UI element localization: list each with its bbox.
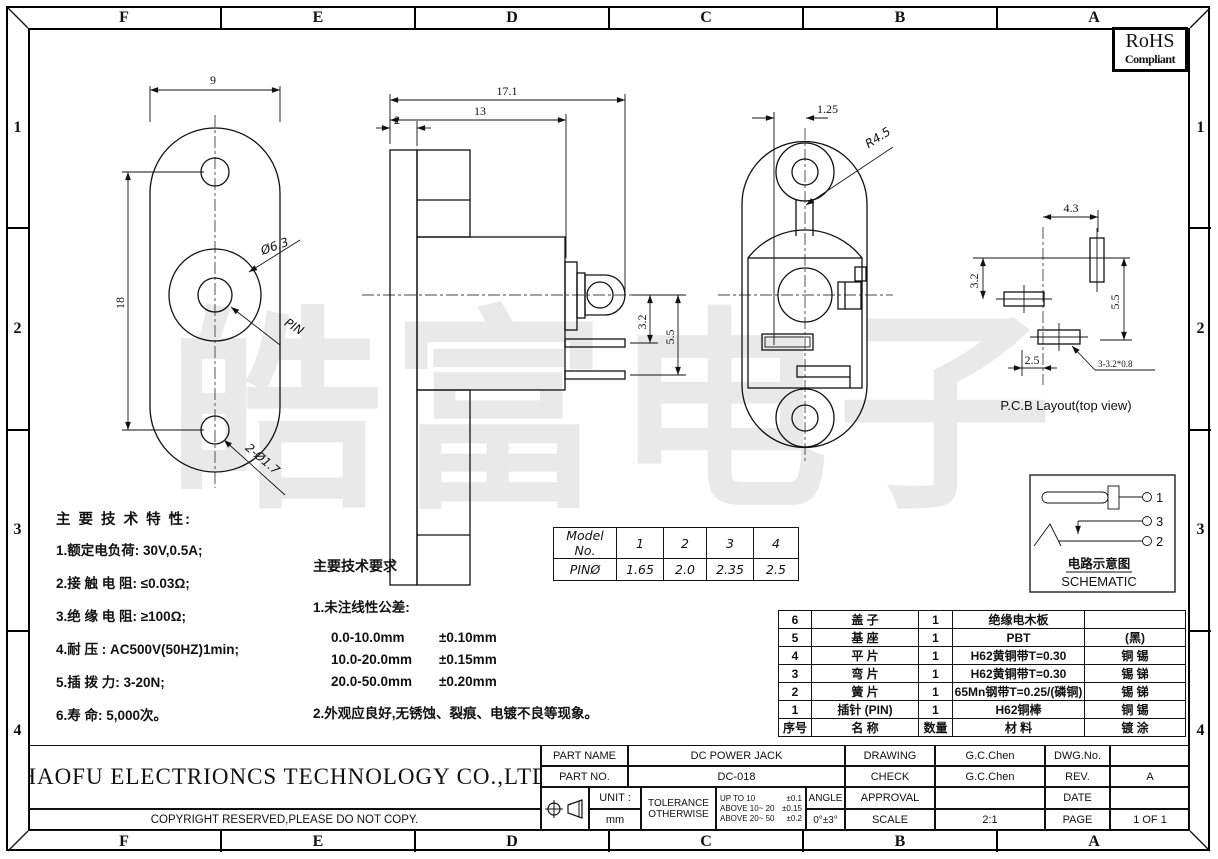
drawing-sheet: 皓富电子 F E D C B A F E D C B A 1 2 3 4 1 2… <box>0 0 1218 859</box>
drawing-label: DRAWING <box>845 745 935 766</box>
company-name: HAOFU ELECTRIONCS TECHNOLOGY CO.,LTD <box>28 745 541 809</box>
bom-row: 6 盖 子 1 绝缘电木板 <box>779 611 1186 629</box>
tolerance-row: 20.0-50.0mm ±0.20mm <box>331 674 633 689</box>
bom-qty: 1 <box>919 629 953 647</box>
bom-row: 1 插针 (PIN) 1 H62铜棒 铜 锡 <box>779 701 1186 719</box>
bom-no: 4 <box>779 647 812 665</box>
projection-symbol-icon <box>544 795 586 823</box>
bom-header-plating: 镀 涂 <box>1085 719 1186 737</box>
front-width-dim: 9 <box>210 73 216 87</box>
rear-view: 1.25 R4.5 <box>718 102 893 462</box>
side-term1-dim: 3.2 <box>635 315 649 330</box>
rear-offset-dim: 1.25 <box>817 102 838 116</box>
bom-header-material: 材 料 <box>953 719 1085 737</box>
rohs-line1: RoHS <box>1115 30 1185 52</box>
model-col: 1 <box>617 528 664 559</box>
bom-qty: 1 <box>919 665 953 683</box>
tolerance-value: ±0.20mm <box>439 674 497 689</box>
part-no-label: PART NO. <box>541 766 628 787</box>
tol-range: ABOVE 10~ 20 <box>720 804 774 814</box>
tolerance-row: 10.0-20.0mm ±0.15mm <box>331 652 633 667</box>
bom-qty: 1 <box>919 701 953 719</box>
tolerance-row: 0.0-10.0mm ±0.10mm <box>331 630 633 645</box>
tech-spec-item: 2.接 触 电 阻: ≤0.03Ω; <box>56 572 326 592</box>
front-mount-holes-label: 2-Ø1.7 <box>243 441 283 478</box>
bom-material: H62黄铜带T=0.30 <box>953 647 1085 665</box>
scale-value: 2:1 <box>935 809 1045 831</box>
page-label: PAGE <box>1045 809 1110 831</box>
rohs-line2: Compliant <box>1115 52 1185 66</box>
pin-dia-value: 2.35 <box>707 559 754 581</box>
schematic-title-en: SCHEMATIC <box>1061 574 1137 589</box>
bom-name: 盖 子 <box>812 611 919 629</box>
date-label: DATE <box>1045 787 1110 809</box>
tech-spec-item: 3.绝 缘 电 阻: ≥100Ω; <box>56 605 326 625</box>
schematic-pin2-label: 2 <box>1156 534 1163 549</box>
part-no-value: DC-018 <box>628 766 845 787</box>
rear-radius-label: R4.5 <box>863 124 894 151</box>
bom-no: 2 <box>779 683 812 701</box>
bom-header-row: 序号 名 称 数量 材 料 镀 涂 <box>779 719 1186 737</box>
tech-spec-block: 主 要 技 术 特 性: 1.额定电负荷: 30V,0.5A; 2.接 触 电 … <box>56 508 326 737</box>
front-pin-label: PIN <box>282 315 306 337</box>
tech-spec-item: 1.额定电负荷: 30V,0.5A; <box>56 539 326 559</box>
schematic-box: 1 3 2 电路示意图 SCHEMATIC <box>1030 475 1175 592</box>
bom-row: 4 平 片 1 H62黄铜带T=0.30 铜 锡 <box>779 647 1186 665</box>
pcb-dim-y2: 5.5 <box>1108 295 1122 310</box>
tolerance-values-cell: UP TO 10 ±0.1 ABOVE 10~ 20 ±0.15 ABOVE 2… <box>716 787 806 831</box>
front-barrel-dia-label: Ø6.3 <box>258 235 291 258</box>
model-col: 4 <box>754 528 799 559</box>
tolerance-mini-row: UP TO 10 ±0.1 <box>720 794 802 804</box>
bom-header-name: 名 称 <box>812 719 919 737</box>
schematic-title-cn: 电路示意图 <box>1068 556 1131 571</box>
bom-plating: (黑) <box>1085 629 1186 647</box>
pin-dia-value: 2.5 <box>754 559 799 581</box>
tech-req-item2: 2.外观应良好,无锈蚀、裂痕、电镀不良等现象。 <box>313 702 633 722</box>
pcb-caption: P.C.B Layout(top view) <box>1000 398 1131 413</box>
bom-name: 插针 (PIN) <box>812 701 919 719</box>
pcb-layout: 4.3 3.2 5.5 2.5 3-3.2*0.8 P.C.B Layout(t… <box>967 201 1155 413</box>
tolerance-range: 0.0-10.0mm <box>331 630 439 645</box>
tol-range: UP TO 10 <box>720 794 755 804</box>
bom-row: 3 弯 片 1 H62黄铜带T=0.30 锡 锑 <box>779 665 1186 683</box>
pcb-dim-y1: 3.2 <box>967 274 981 289</box>
side-total-dim: 17.1 <box>497 84 518 98</box>
model-table-pin-row: PINØ 1.65 2.0 2.35 2.5 <box>554 559 799 581</box>
front-height-dim: 18 <box>113 297 127 309</box>
schematic-pin3-label: 3 <box>1156 514 1163 529</box>
side-flange-dim: 2 <box>394 113 400 127</box>
schematic-pin1-label: 1 <box>1156 490 1163 505</box>
tolerance-range: 20.0-50.0mm <box>331 674 439 689</box>
bom-plating: 铜 锡 <box>1085 701 1186 719</box>
pcb-dim-x: 4.3 <box>1064 201 1079 215</box>
bom-qty: 1 <box>919 611 953 629</box>
tolerance-mini-row: ABOVE 20~ 50 ±0.2 <box>720 814 802 824</box>
bom-row: 2 簧 片 1 65Mn钢带T=0.25/(磷铜) 锡 锑 <box>779 683 1186 701</box>
title-block: HAOFU ELECTRIONCS TECHNOLOGY CO.,LTD COP… <box>28 745 1190 831</box>
dwg-no-value <box>1110 745 1190 766</box>
check-label: CHECK <box>845 766 935 787</box>
bom-plating: 锡 锑 <box>1085 665 1186 683</box>
tolerance-value: ±0.15mm <box>439 652 497 667</box>
bom-row: 5 基 座 1 PBT (黑) <box>779 629 1186 647</box>
scale-label: SCALE <box>845 809 935 831</box>
tolerance-label-line1: TOLERANCE <box>648 798 709 809</box>
bom-no: 6 <box>779 611 812 629</box>
bom-no: 3 <box>779 665 812 683</box>
pin-dia-value: 2.0 <box>664 559 707 581</box>
angle-value: 0°±3° <box>806 809 845 831</box>
copyright-notice: COPYRIGHT RESERVED,PLEASE DO NOT COPY. <box>28 809 541 831</box>
model-col: 3 <box>707 528 754 559</box>
check-by-value: G.C.Chen <box>935 766 1045 787</box>
bom-plating <box>1085 611 1186 629</box>
rohs-stamp: RoHS Compliant <box>1112 27 1188 72</box>
model-table-header-row: Model No. 1 2 3 4 <box>554 528 799 559</box>
date-value <box>1110 787 1190 809</box>
bom-material: PBT <box>953 629 1085 647</box>
tolerance-range: 10.0-20.0mm <box>331 652 439 667</box>
bom-qty: 1 <box>919 683 953 701</box>
bom-name: 簧 片 <box>812 683 919 701</box>
bom-header-qty: 数量 <box>919 719 953 737</box>
pin-dia-header: PINØ <box>554 559 617 581</box>
model-table: Model No. 1 2 3 4 PINØ 1.65 2.0 2.35 2.5 <box>553 527 799 581</box>
angle-label: ANGLE <box>806 787 845 809</box>
rev-value: A <box>1110 766 1190 787</box>
approval-value <box>935 787 1045 809</box>
bom-header-no: 序号 <box>779 719 812 737</box>
side-body-dim: 13 <box>474 104 486 118</box>
tech-spec-item: 5.插 拨 力: 3-20N; <box>56 671 326 691</box>
rev-label: REV. <box>1045 766 1110 787</box>
tech-spec-item: 4.耐 压 : AC500V(50HZ)1min; <box>56 638 326 658</box>
pin-dia-value: 1.65 <box>617 559 664 581</box>
tolerance-mini-row: ABOVE 10~ 20 ±0.15 <box>720 804 802 814</box>
side-view: 17.1 13 2 3.2 5.5 <box>362 84 686 585</box>
bom-material: 绝缘电木板 <box>953 611 1085 629</box>
part-name-label: PART NAME <box>541 745 628 766</box>
tol-range: ABOVE 20~ 50 <box>720 814 774 824</box>
drawing-by-value: G.C.Chen <box>935 745 1045 766</box>
model-col: 2 <box>664 528 707 559</box>
projection-symbol-cell <box>541 787 589 831</box>
bom-name: 弯 片 <box>812 665 919 683</box>
bom-material: 65Mn钢带T=0.25/(磷铜) <box>953 683 1085 701</box>
tolerance-label-cell: TOLERANCE OTHERWISE <box>641 787 716 831</box>
tol-val: ±0.15 <box>782 804 802 814</box>
bom-table: 6 盖 子 1 绝缘电木板 5 基 座 1 PBT (黑) 4 平 片 1 H6… <box>778 610 1186 737</box>
part-name-value: DC POWER JACK <box>628 745 845 766</box>
tol-val: ±0.2 <box>786 814 802 824</box>
tolerance-label-line2: OTHERWISE <box>648 809 708 820</box>
tech-spec-item: 6.寿 命: 5,000次。 <box>56 704 326 724</box>
tol-val: ±0.1 <box>786 794 802 804</box>
bom-name: 基 座 <box>812 629 919 647</box>
bom-no: 5 <box>779 629 812 647</box>
approval-label: APPROVAL <box>845 787 935 809</box>
tolerance-value: ±0.10mm <box>439 630 497 645</box>
pcb-dim-x2: 2.5 <box>1025 353 1040 367</box>
unit-value: mm <box>589 809 641 831</box>
bom-material: H62铜棒 <box>953 701 1085 719</box>
bom-plating: 铜 锡 <box>1085 647 1186 665</box>
dwg-no-label: DWG.No. <box>1045 745 1110 766</box>
bom-no: 1 <box>779 701 812 719</box>
unit-label: UNIT : <box>589 787 641 809</box>
bom-material: H62黄铜带T=0.30 <box>953 665 1085 683</box>
pcb-hole-note: 3-3.2*0.8 <box>1098 359 1133 369</box>
bom-qty: 1 <box>919 647 953 665</box>
bom-plating: 锡 锑 <box>1085 683 1186 701</box>
page-value: 1 OF 1 <box>1110 809 1190 831</box>
tech-spec-title: 主 要 技 术 特 性: <box>56 508 326 529</box>
side-term2-dim: 5.5 <box>663 330 677 345</box>
model-no-header: Model No. <box>554 528 617 559</box>
bom-name: 平 片 <box>812 647 919 665</box>
tech-req-item1: 1.未注线性公差: <box>313 596 633 616</box>
front-view: 9 18 Ø6.3 PIN 2-Ø1.7 <box>113 73 306 495</box>
